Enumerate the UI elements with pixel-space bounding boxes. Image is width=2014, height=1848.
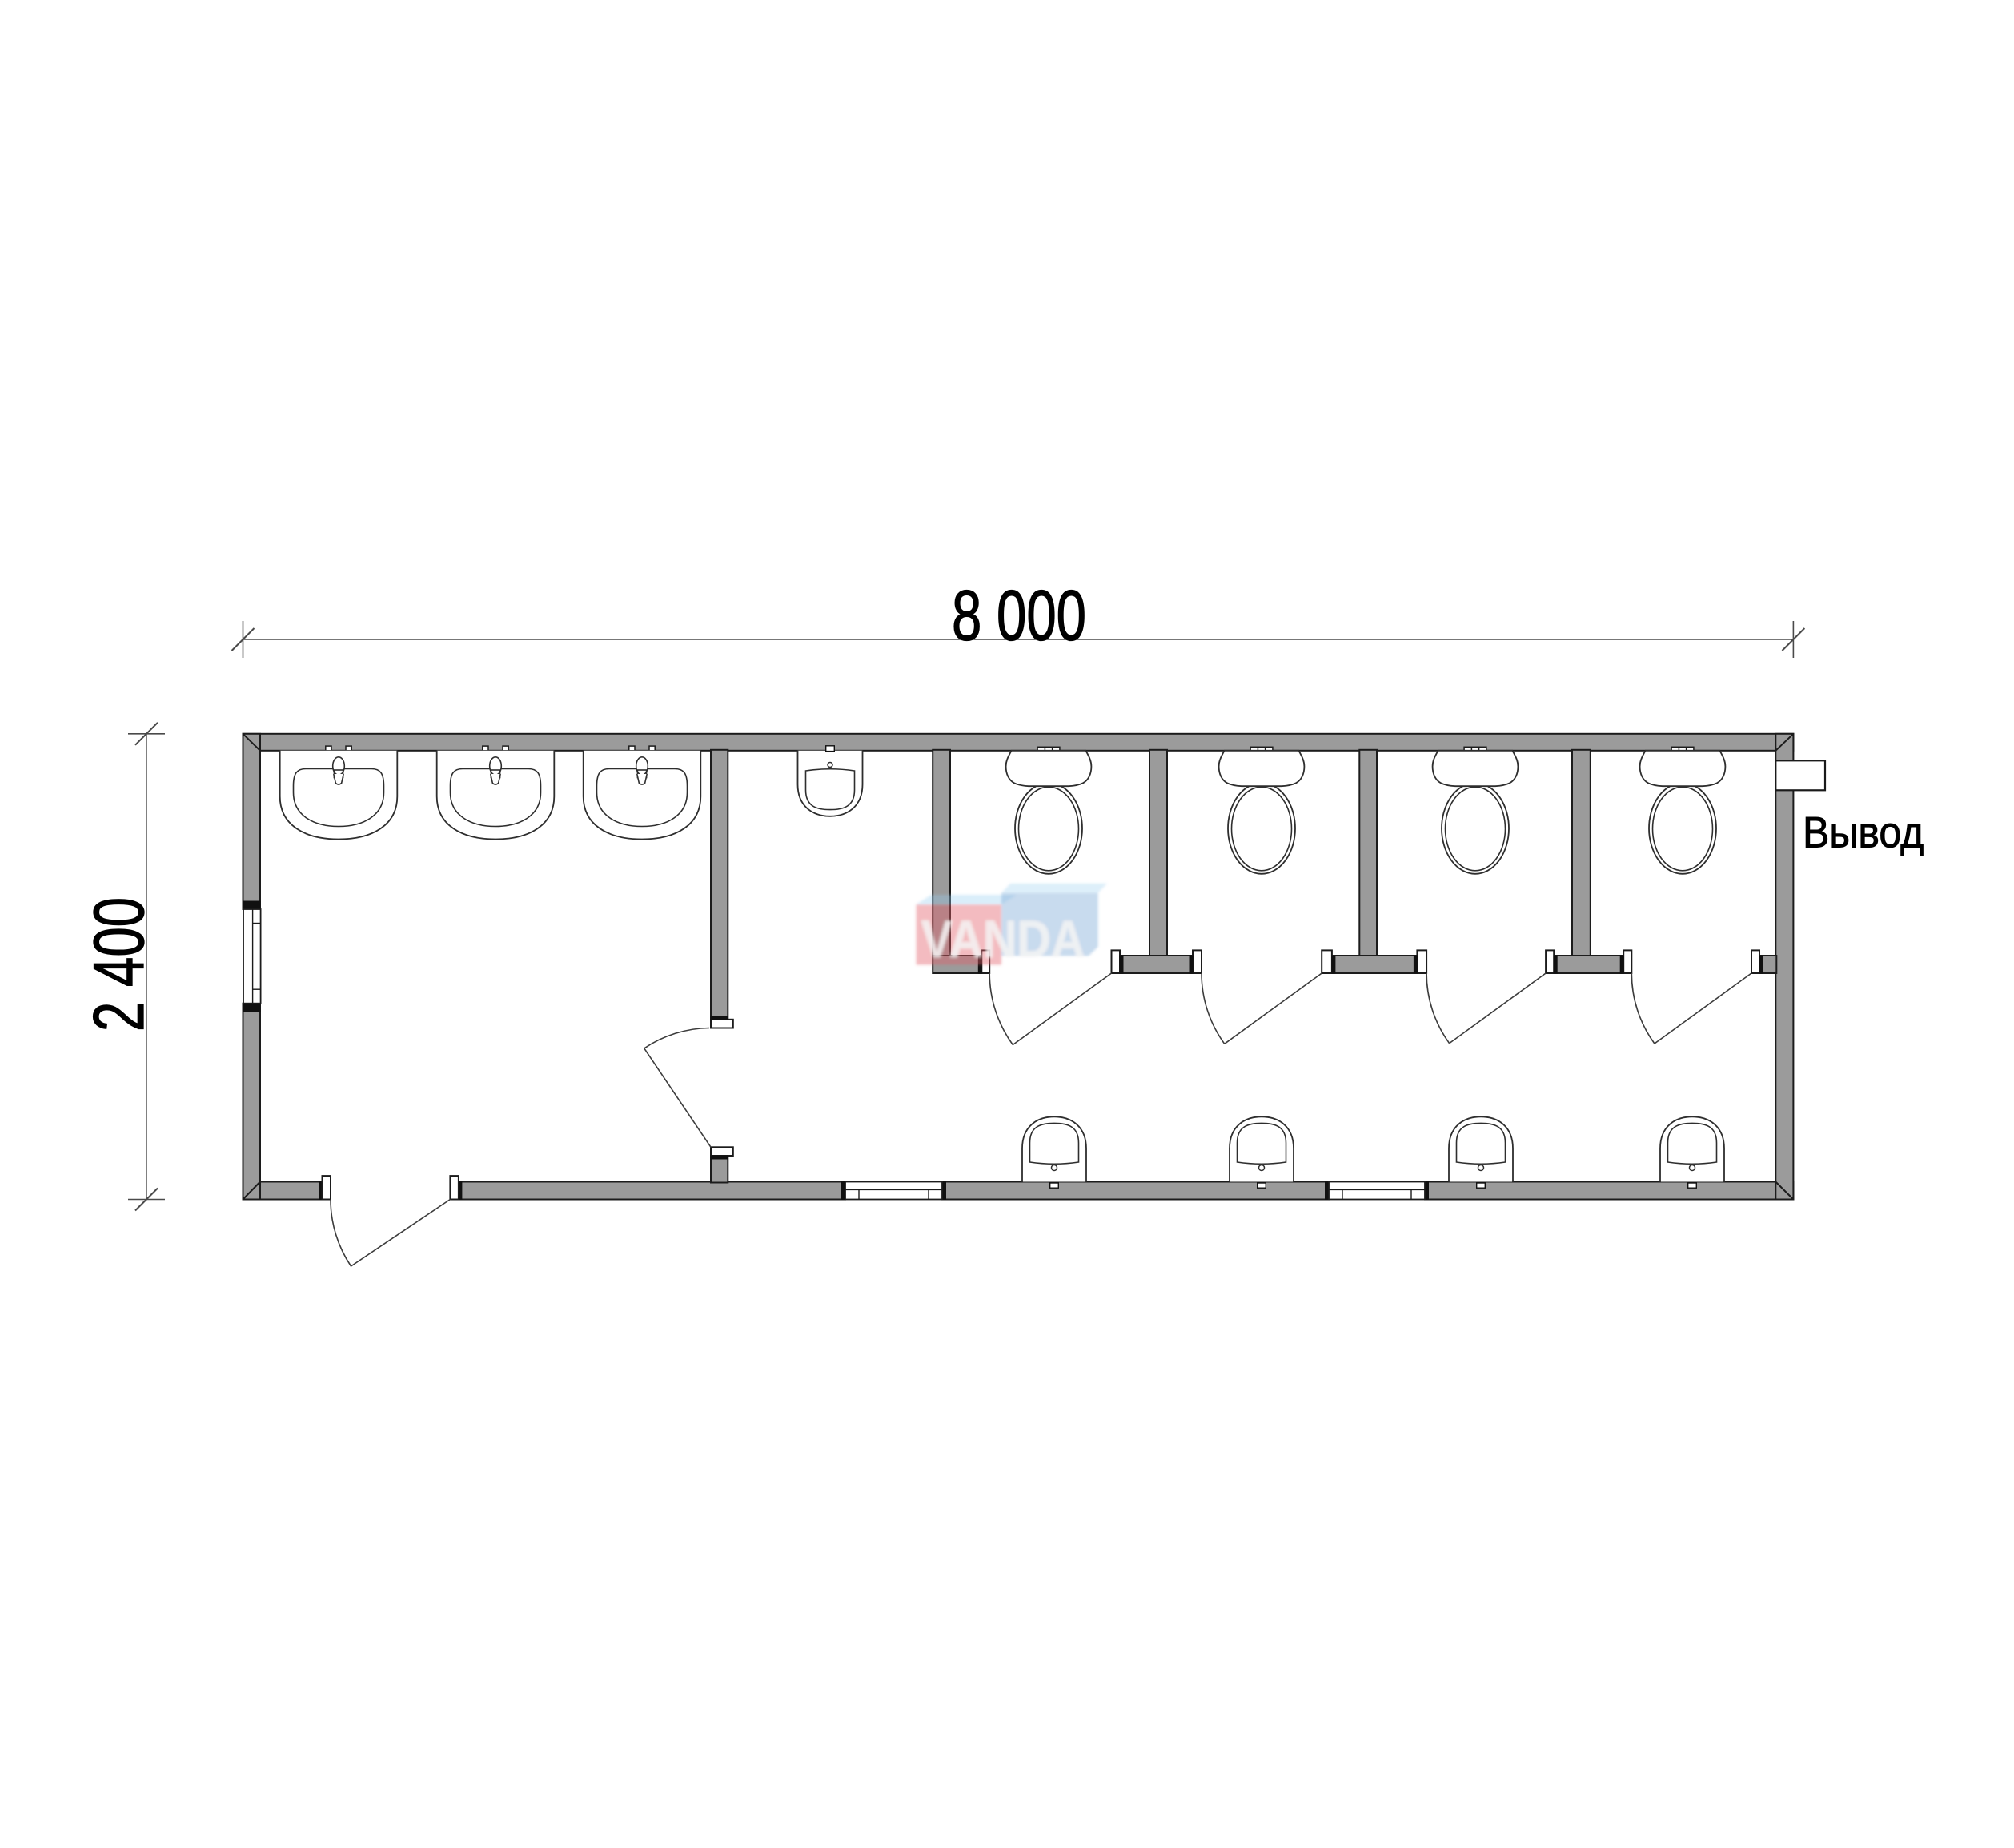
svg-text:Вывод: Вывод	[1803, 808, 1924, 857]
svg-text:VANDA: VANDA	[921, 910, 1085, 969]
svg-text:2 400: 2 400	[78, 897, 159, 1032]
svg-text:8 000: 8 000	[952, 575, 1086, 655]
